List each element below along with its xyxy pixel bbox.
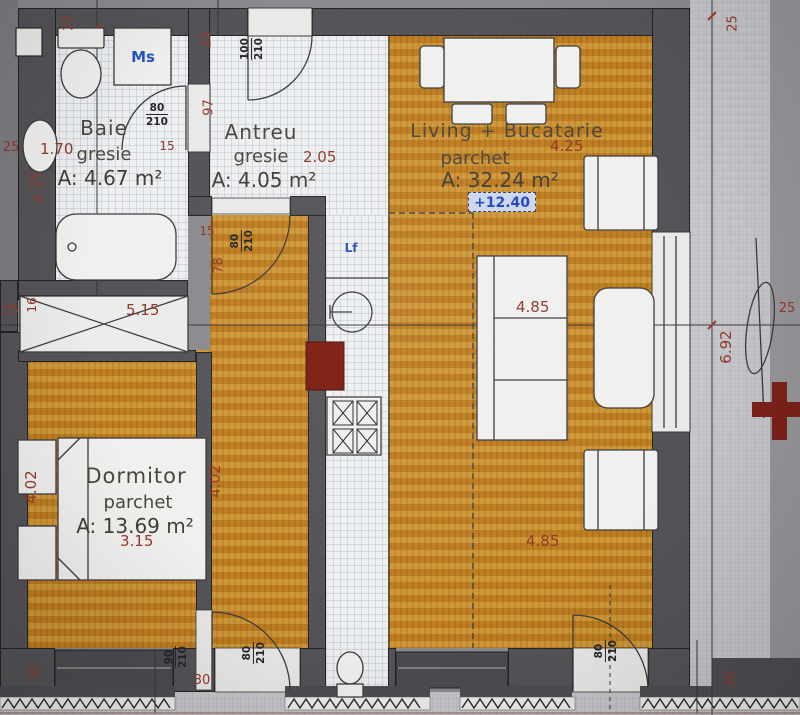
wall-nook: [16, 28, 42, 56]
mark-16-closet: 16: [25, 295, 39, 315]
mark-30-mid: 30: [190, 673, 214, 688]
bedroom-door-size: 90 210: [163, 643, 189, 671]
living-finish: parchet: [420, 148, 530, 169]
sofa: [477, 256, 567, 440]
bedroom-door-width: 90: [163, 650, 175, 665]
washing-machine-label: Ms: [128, 48, 158, 66]
living-window: [396, 652, 508, 688]
mark-78-hall: 78: [212, 255, 227, 277]
kitchen-shaft-block: [306, 342, 344, 390]
bath-door-size: 80 210: [146, 102, 168, 128]
living-balcony-door-size: 80 210: [593, 637, 619, 665]
baie-finish: gresie: [64, 144, 144, 165]
right-window-opening: [652, 232, 690, 432]
bedroom-door-height: 210: [175, 646, 189, 668]
corridor-balcony-door-width: 80: [241, 646, 253, 661]
mark-25-right: 25: [776, 301, 798, 316]
antreu-name: Antreu: [216, 120, 306, 144]
dormitor-finish: parchet: [88, 492, 188, 513]
chair-right: [556, 46, 580, 88]
mark-25-top-right: 25: [726, 13, 741, 35]
mark-15-hall: 15: [198, 224, 216, 238]
kitchen-zone-dashed-boundary: [389, 213, 473, 648]
bath-door-width: 80: [150, 102, 165, 114]
corridor-balcony-door-height: 210: [253, 642, 267, 664]
baie-area: A: 4.67 m²: [50, 166, 170, 190]
living-balcony-door-width: 80: [593, 644, 605, 659]
hall-door-opening: [212, 198, 290, 214]
dim-closet-width: 5.15: [126, 301, 159, 319]
dim-corridor-depth: 4.02: [206, 458, 224, 504]
entry-door-opening: [248, 8, 312, 36]
lower-toilet-bowl: [337, 652, 363, 684]
hall-door-height: 210: [241, 230, 255, 252]
hall-door-size: 80 210: [229, 227, 255, 255]
armchair-bottom: [584, 450, 658, 530]
mark-15-bath: 15: [158, 139, 176, 153]
mark-25-top-left: 25: [62, 12, 77, 34]
plan-linework: [0, 0, 800, 715]
floor-plan: Baie gresie A: 4.67 m² Antreu gresie A: …: [0, 0, 800, 715]
dim-bedroom-depth: 4.02: [22, 464, 40, 510]
fridge-label: Lf: [338, 241, 364, 255]
living-area: A: 32.24 m²: [435, 168, 565, 192]
mark-25-top-mid: 25: [200, 29, 215, 51]
level-marker: +12.40: [468, 192, 536, 212]
hatch-strips: [0, 697, 800, 710]
chair-left: [420, 46, 444, 88]
red-cross-marker: [752, 382, 800, 440]
entry-door-height: 210: [251, 38, 265, 60]
bathtub: [56, 214, 176, 280]
armchair-top: [584, 156, 658, 230]
mark-25-left-b: 25: [1, 303, 21, 318]
mark-30-right: 30: [724, 669, 739, 691]
dim-bath-depth: 2.75: [28, 164, 46, 210]
antreu-area: A: 4.05 m²: [204, 168, 324, 192]
dim-bath-width: 1.70: [40, 140, 73, 158]
mark-25-left-a: 25: [1, 140, 21, 155]
toilet-bowl: [61, 50, 101, 98]
dim-antreu-width: 2.05: [303, 148, 336, 166]
dim-bedroom-width: 3.15: [120, 532, 153, 550]
casement-line: [756, 238, 764, 418]
entry-door-width: 100: [239, 38, 251, 60]
antreu-finish: gresie: [216, 146, 306, 167]
dim-living-depth: 6.92: [717, 325, 735, 369]
bath-door-height: 210: [146, 114, 168, 128]
hall-door-width: 80: [229, 234, 241, 249]
dining-table: [444, 38, 554, 102]
dim-living-lower-width: 4.85: [526, 532, 559, 550]
living-balcony-door-height: 210: [605, 640, 619, 662]
dim-living-mid-width: 4.85: [516, 298, 549, 316]
baie-name: Baie: [64, 116, 144, 140]
nightstand-bottom: [18, 526, 56, 580]
mark-30-left: 30: [28, 661, 43, 683]
entry-door-size: 100 210: [239, 35, 265, 63]
corridor-balcony-door-size: 80 210: [241, 639, 267, 667]
coffee-table: [594, 288, 654, 408]
lower-toilet-tank: [337, 684, 363, 697]
dormitor-name: Dormitor: [76, 464, 196, 488]
mark-97-entry: 97: [202, 97, 217, 119]
dim-living-width: 4.25: [550, 137, 583, 155]
